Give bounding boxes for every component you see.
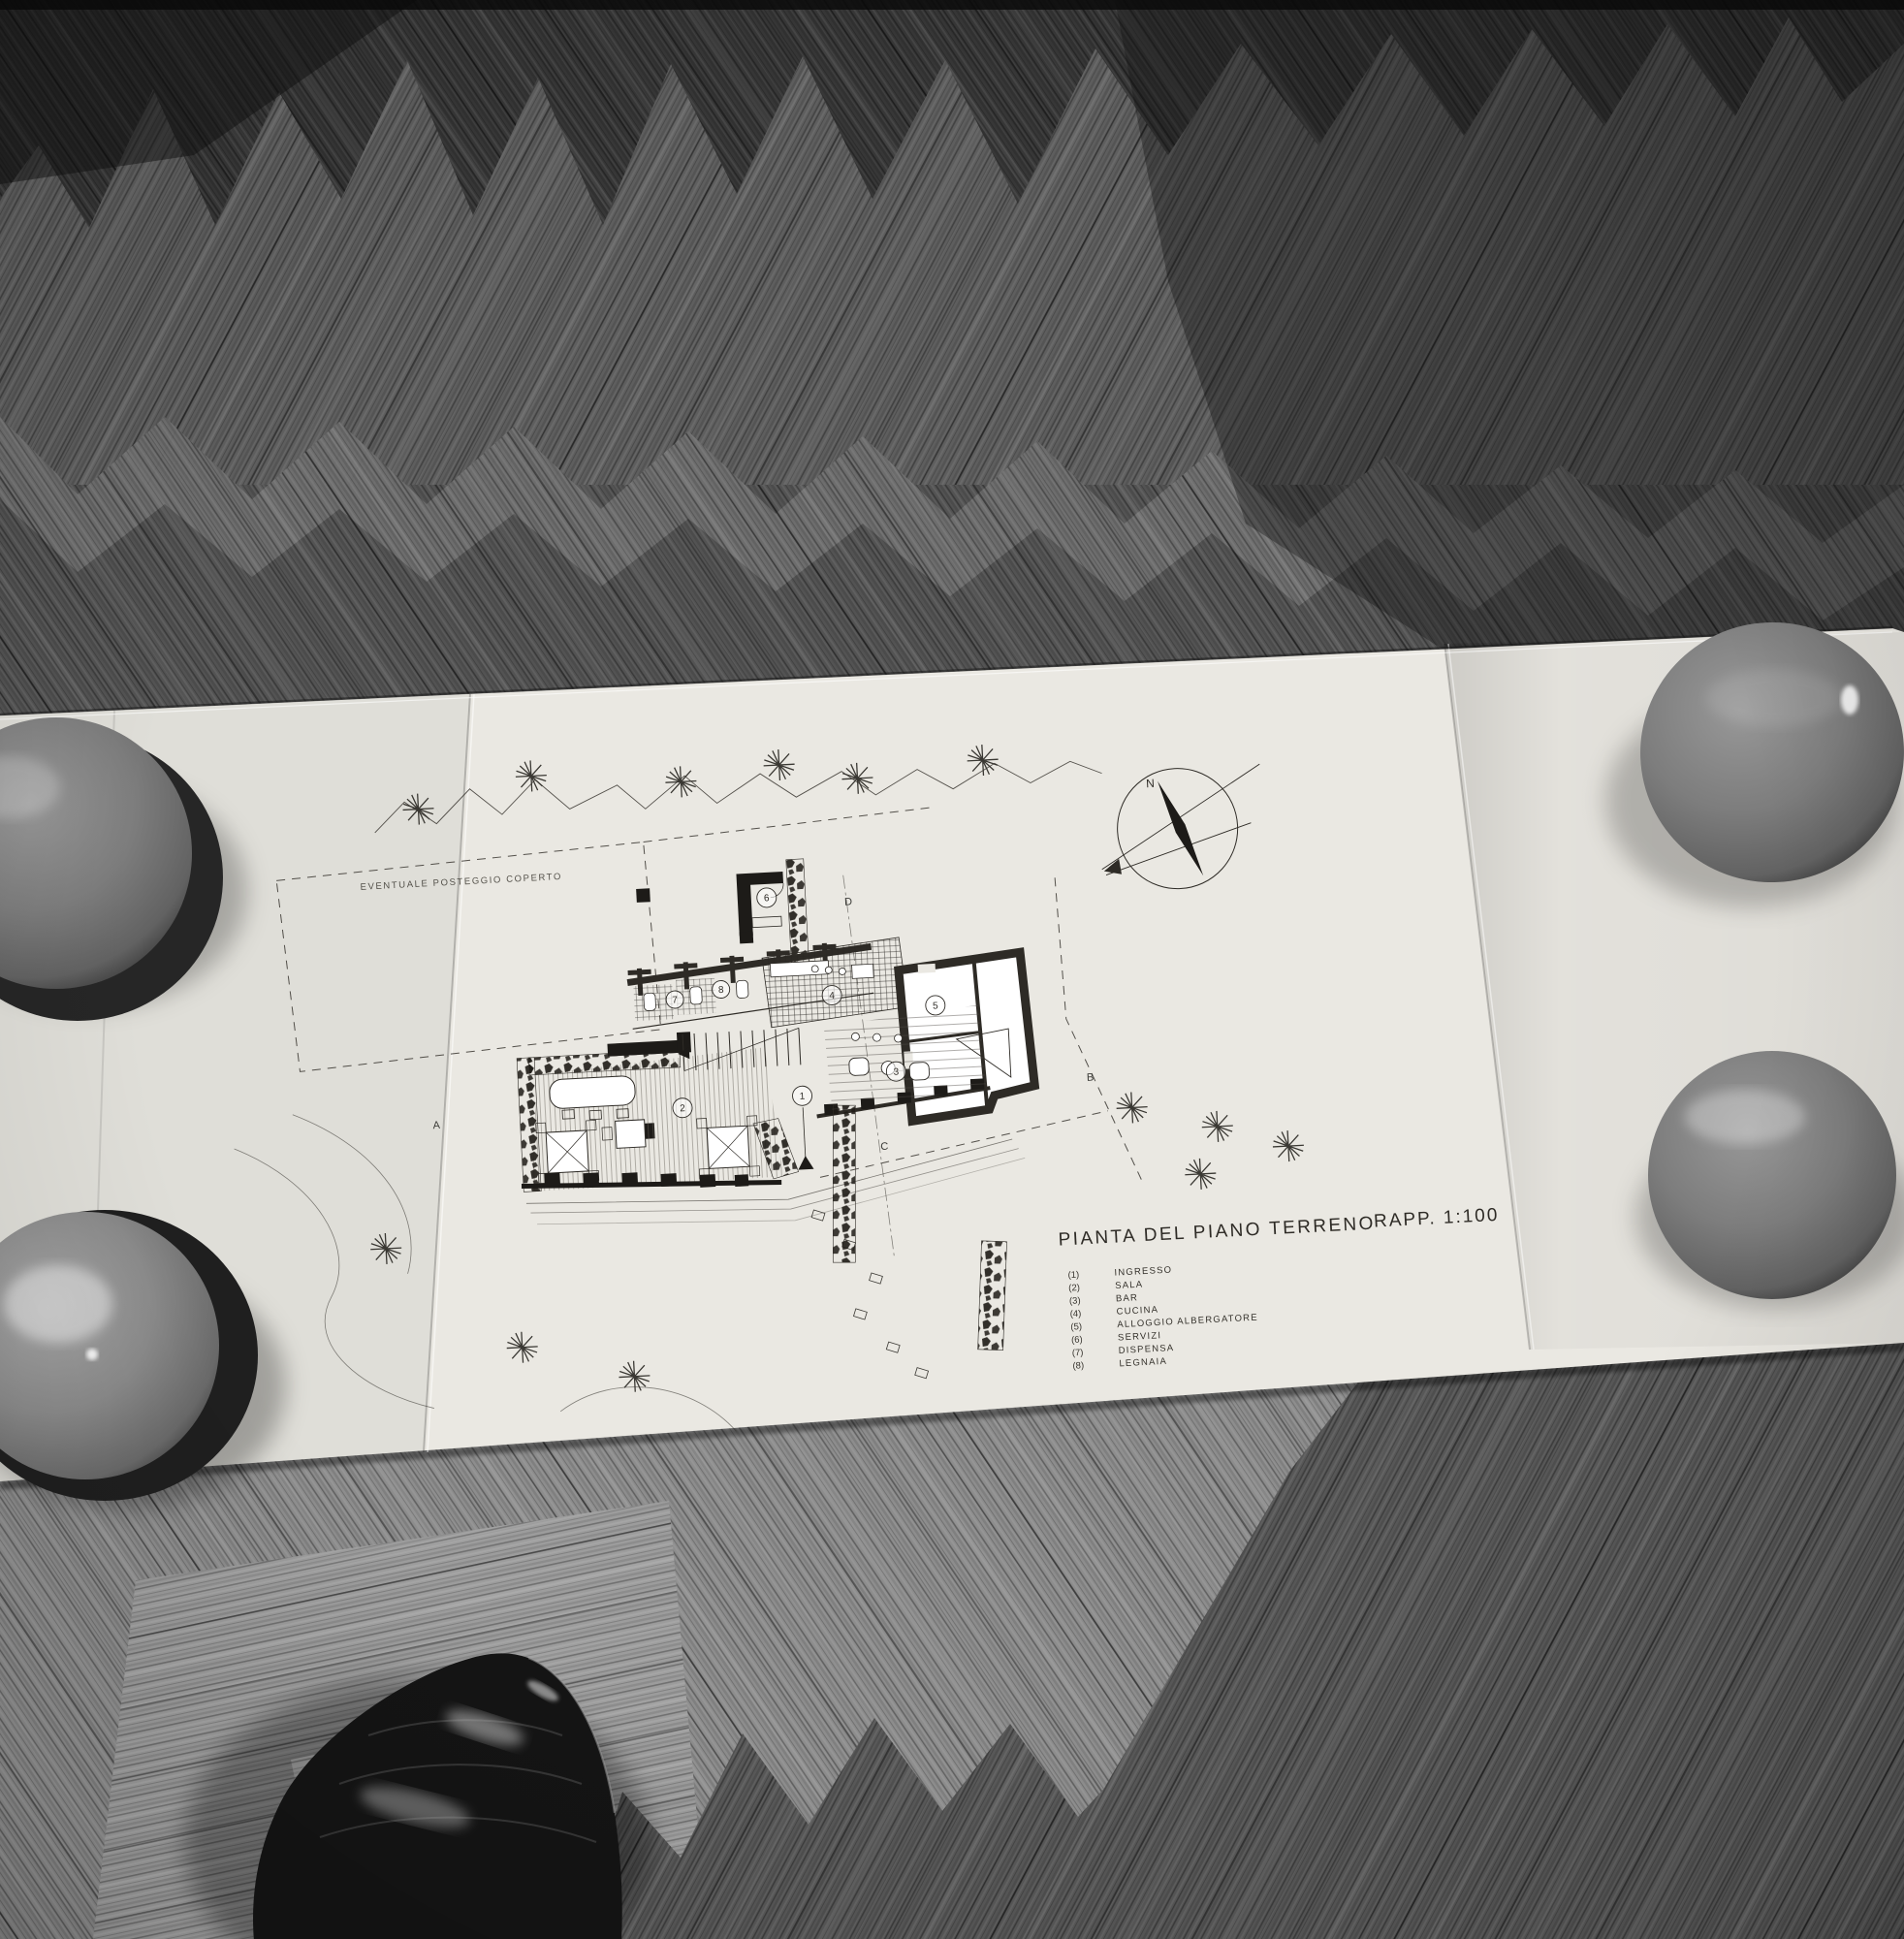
photo-vignette xyxy=(0,0,1904,1939)
photograph: 1 2 3 4 5 6 7 8 A B C D N EVENTUALE POST… xyxy=(0,0,1904,1939)
